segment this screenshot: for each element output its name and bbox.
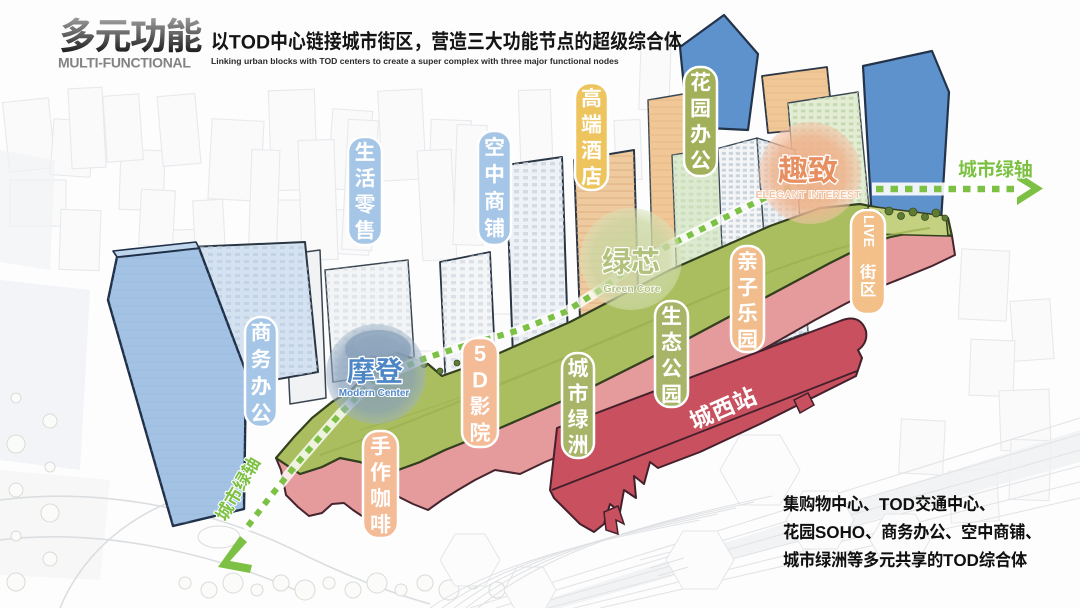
svg-text:Linking urban blocks with TOD: Linking urban blocks with TOD centers to…: [211, 56, 619, 66]
svg-text:ELEGANT INTEREST: ELEGANT INTEREST: [755, 189, 861, 201]
svg-text:Green Core: Green Core: [603, 283, 660, 295]
svg-text:MULTI-FUNCTIONAL: MULTI-FUNCTIONAL: [58, 55, 191, 71]
svg-text:Modern Center: Modern Center: [339, 388, 410, 399]
